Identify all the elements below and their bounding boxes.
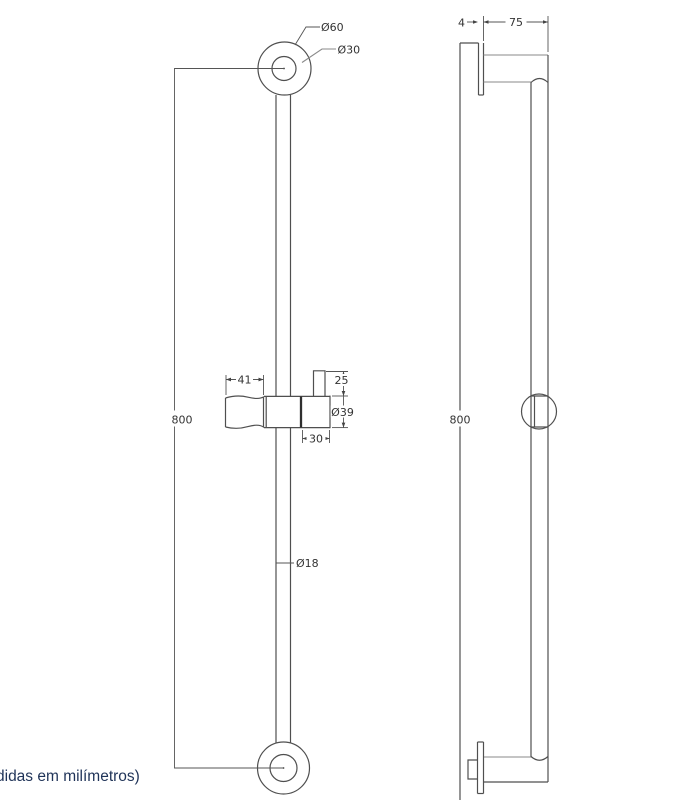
top-wall-flange <box>479 43 484 95</box>
dim-39-arrow-down <box>342 423 346 428</box>
dim-label-d30: Ø30 <box>338 44 361 57</box>
dim-ring-width: 30 <box>303 430 330 446</box>
dim-25-arrow-down <box>342 391 346 396</box>
holder-handle-bottom-edge <box>226 425 265 428</box>
top-arm <box>484 55 549 83</box>
dim-side-top: 4 75 <box>458 16 548 53</box>
dim-41-arrow-right <box>259 378 264 382</box>
dim-label-25: 25 <box>335 374 349 387</box>
front-view: 800 Ø60 Ø30 41 <box>164 21 360 794</box>
side-slider-knob <box>522 394 557 429</box>
dim-label-30: 30 <box>309 433 323 446</box>
dim-tube-diameter: Ø18 <box>276 557 319 570</box>
bottom-fixing-block <box>468 760 478 779</box>
bottom-arm <box>484 757 549 783</box>
dim-handle-length: 41 <box>226 374 264 396</box>
dim-flange-inner: Ø30 <box>302 44 360 63</box>
dim-label-d39: Ø39 <box>331 406 354 419</box>
technical-drawing-page: 800 Ø60 Ø30 41 <box>0 0 685 800</box>
dim-flange-outer: Ø60 <box>295 21 344 45</box>
dim-75-arrow-left <box>484 20 489 24</box>
holder-socket-outline <box>314 371 326 397</box>
slide-bar-drawing: 800 Ø60 Ø30 41 <box>0 0 685 800</box>
holder-handle-top-edge <box>226 396 265 398</box>
dim-4-arrow <box>473 20 478 24</box>
dim-label-4: 4 <box>458 17 465 30</box>
dim-side-height: 800 <box>447 411 475 427</box>
dim-75-arrow-right <box>543 20 548 24</box>
dim-d60-leader <box>295 27 320 45</box>
dim-label-d18: Ø18 <box>296 557 319 570</box>
rail-bottom-dome <box>531 757 548 761</box>
units-note: didas em milímetros) <box>0 768 140 785</box>
dim-label-side-height: 800 <box>450 414 471 427</box>
rail-top-dome <box>531 79 548 83</box>
dim-label-41: 41 <box>238 374 252 387</box>
dim-label-d60: Ø60 <box>321 21 344 34</box>
bottom-wall-flange <box>468 742 484 794</box>
dim-label-front-height: 800 <box>172 414 193 427</box>
dim-label-75: 75 <box>509 16 523 29</box>
side-view: 4 75 800 <box>447 16 557 800</box>
knob-circle <box>522 394 557 429</box>
dim-41-arrow-left <box>226 378 231 382</box>
